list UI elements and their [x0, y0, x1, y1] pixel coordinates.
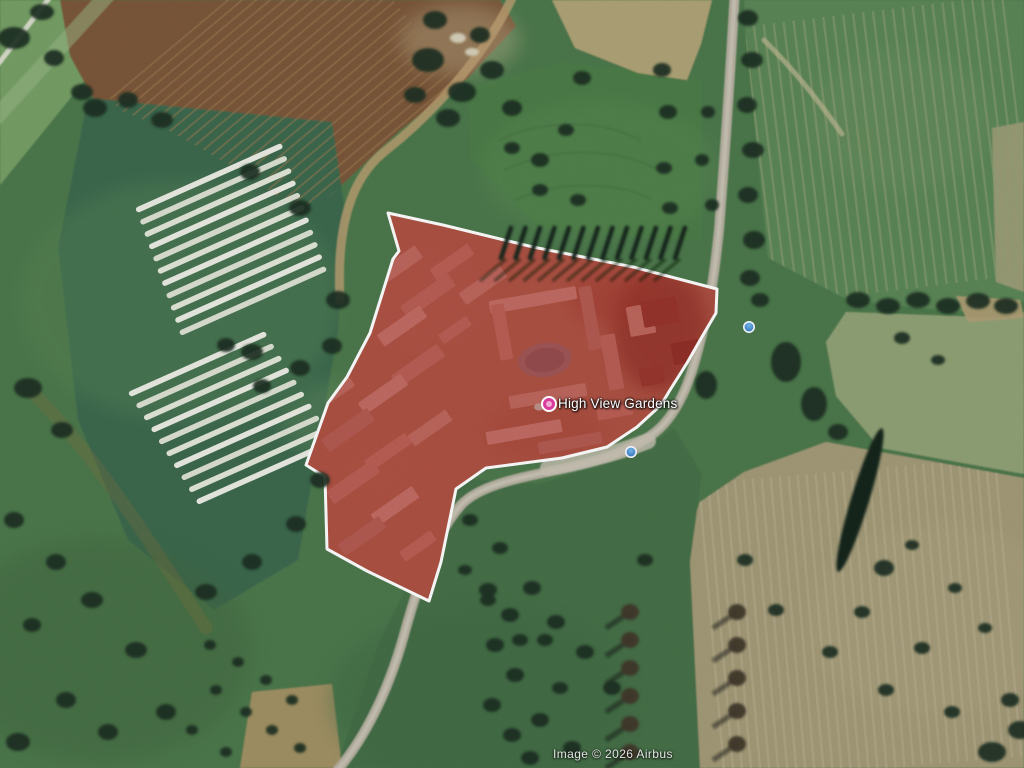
place-label[interactable]: High View Gardens [558, 396, 677, 411]
photo-marker[interactable] [742, 320, 756, 339]
photo-sphere-icon [626, 447, 636, 457]
photo-sphere-icon [744, 322, 754, 332]
image-grain [0, 0, 1024, 768]
satellite-imagery [0, 0, 1024, 768]
photo-marker[interactable] [624, 445, 638, 464]
place-marker-pin[interactable] [534, 392, 560, 421]
place-pin-dot [546, 401, 552, 407]
satellite-map-canvas[interactable]: High View Gardens Image © 2026 Airbus [0, 0, 1024, 768]
